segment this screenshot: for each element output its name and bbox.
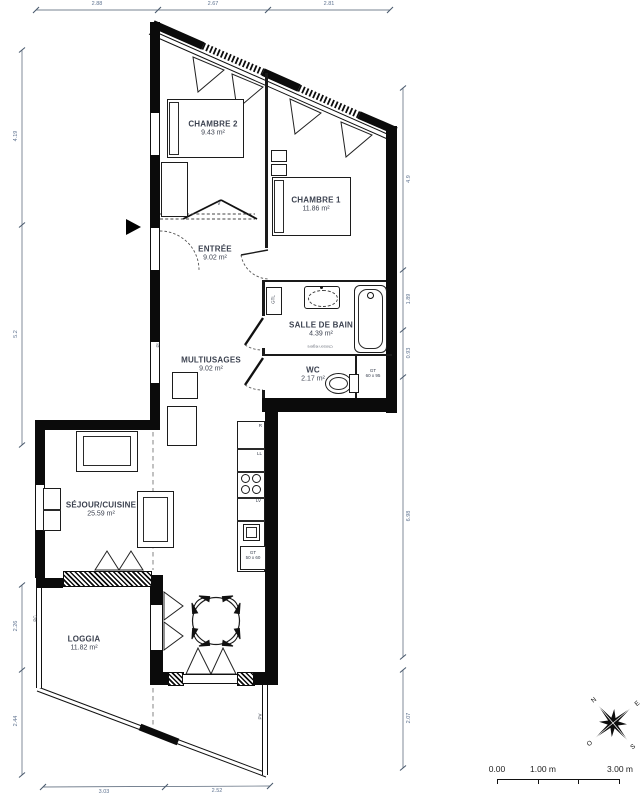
gtl-label: GTL <box>272 287 277 311</box>
scale-tick <box>619 779 620 784</box>
sofa-seat <box>83 436 131 466</box>
wall-segment <box>35 420 160 430</box>
wall-segment <box>150 672 168 685</box>
room-label-chambre1: CHAMBRE 1 11.86 m² <box>261 196 371 215</box>
partition <box>264 354 392 356</box>
scale-tick <box>497 779 498 784</box>
dim-right-4: 6.98 <box>406 501 412 531</box>
chair-icon <box>220 626 245 651</box>
wall-segment <box>150 270 160 282</box>
room-area: 4.39 m² <box>266 331 376 340</box>
room-name: CHAMBRE 2 <box>158 120 268 130</box>
room-label-loggia: LOGGIA 11.82 m² <box>29 635 139 654</box>
room-name: WC <box>258 366 368 376</box>
glazing-swings <box>95 551 236 674</box>
wall-segment <box>262 398 397 412</box>
room-label-wc: WC 2.17 m² <box>258 366 368 385</box>
drain-icon <box>367 292 374 299</box>
desk <box>172 372 198 399</box>
door-threshold <box>182 674 239 684</box>
pv-label: PV <box>259 707 264 725</box>
wall-segment <box>150 282 160 342</box>
loggia-diagonal-glazing <box>37 687 267 777</box>
cooktop-burner <box>241 485 250 494</box>
room-label-chambre2: CHAMBRE 2 9.43 m² <box>158 120 268 139</box>
partition <box>262 390 265 398</box>
wall-segment <box>265 398 278 685</box>
dim-right-3: 0.93 <box>406 338 412 368</box>
scale-tick <box>538 779 539 784</box>
room-area: 25.59 m² <box>46 511 156 520</box>
dim-left-3: 2.26 <box>13 611 19 641</box>
cooktop-burner <box>252 474 261 483</box>
dim-bottom-1: 3.03 <box>89 789 119 795</box>
partition <box>262 280 265 316</box>
room-name: ENTRÉE <box>160 245 270 255</box>
wall-segment <box>150 155 160 228</box>
room-label-multiusages: MULTIUSAGES 9.02 m² <box>156 356 266 375</box>
dim-right-5: 2.07 <box>406 703 412 733</box>
dresser <box>161 162 188 217</box>
fridge-label: R <box>250 424 262 429</box>
scale-one: 1.00 m <box>521 764 565 774</box>
dishwasher-label: LV <box>245 499 261 504</box>
wall-segment <box>35 530 45 578</box>
wall-segment <box>35 430 45 485</box>
wardrobe-label: V <box>217 201 221 207</box>
dim-left-4: 2.44 <box>13 706 19 736</box>
dim-right-2: 1.89 <box>406 284 412 314</box>
scale-three: 3.00 m <box>598 764 642 774</box>
faucet-icon <box>320 286 323 289</box>
compass-east: E <box>633 699 641 708</box>
cabinet <box>167 406 197 446</box>
room-name: LOGGIA <box>29 635 139 645</box>
room-area: 9.02 m² <box>160 255 270 264</box>
scale-tick <box>578 779 579 784</box>
window <box>150 605 163 650</box>
dim-bottom-2: 2.52 <box>202 788 232 794</box>
dim-top-3: 2.81 <box>314 1 344 7</box>
loggia-rail <box>262 685 268 775</box>
gt-wc-size: 60 x 95 <box>362 374 384 379</box>
room-area: 9.02 m² <box>156 366 266 375</box>
kitchen-sink-basin <box>246 527 257 538</box>
room-area: 9.43 m² <box>158 130 268 139</box>
room-label-entree: ENTRÉE 9.02 m² <box>160 245 270 264</box>
compass-north: N <box>590 696 598 705</box>
counter-divider <box>237 520 265 522</box>
pl-label: Pl <box>157 336 162 354</box>
nightstand <box>271 164 287 176</box>
wall-segment <box>386 126 397 413</box>
glazing-shutter-hatch <box>63 571 152 587</box>
room-label-sejour-cuisine: SÉJOUR/CUISINE 25.59 m² <box>46 501 156 520</box>
entrance-door-opening <box>150 228 160 270</box>
room-name: MULTIUSAGES <box>156 356 266 366</box>
room-area: 11.86 m² <box>261 206 371 215</box>
room-area: 11.82 m² <box>29 645 139 654</box>
cooktop-burner <box>252 485 261 494</box>
washing-machine-label: LL <box>246 452 262 457</box>
nightstand <box>271 150 287 162</box>
counter-divider <box>237 471 265 473</box>
wall-segment <box>36 578 63 588</box>
gt-kitchen-size: 50 x 60 <box>241 556 265 561</box>
dining-table-set <box>187 591 245 651</box>
chair-icon <box>187 626 212 651</box>
dim-left-2: 5.2 <box>13 319 19 349</box>
floor-plan: N E S O <box>0 0 644 800</box>
counter-divider <box>237 448 265 450</box>
bathroom-sink-basin <box>308 290 338 307</box>
gt-kitchen-label: GT 50 x 60 <box>241 551 265 561</box>
partition <box>264 280 386 282</box>
scale-bar <box>497 779 620 780</box>
room-name: SALLE DE BAIN <box>266 321 376 331</box>
room-label-salle-de-bain: SALLE DE BAIN 4.39 m² <box>266 321 376 340</box>
entrance-arrow-icon <box>126 219 141 235</box>
compass-west: O <box>586 739 594 748</box>
room-name: CHAMBRE 1 <box>261 196 371 206</box>
partition-note: Cloison légère <box>295 344 345 348</box>
scale-zero: 0.00 <box>475 764 519 774</box>
dim-left-1: 4.19 <box>13 121 19 151</box>
chair-icon <box>220 591 245 616</box>
room-name: SÉJOUR/CUISINE <box>46 501 156 511</box>
chair-icon <box>187 591 212 616</box>
room-area: 2.17 m² <box>258 376 368 385</box>
dim-top-2: 2.67 <box>198 1 228 7</box>
compass-rose-icon: N E S O <box>566 676 644 771</box>
compass-south: S <box>629 743 637 752</box>
pc-label: PC <box>34 609 39 627</box>
wall-segment <box>150 22 160 113</box>
dim-top-1: 2.88 <box>82 1 112 7</box>
dim-right-1: 4.9 <box>406 164 412 194</box>
gt-wc-label: GT 60 x 95 <box>362 369 384 379</box>
partition <box>265 73 268 248</box>
wall-segment <box>253 672 278 685</box>
cooktop-burner <box>241 474 250 483</box>
